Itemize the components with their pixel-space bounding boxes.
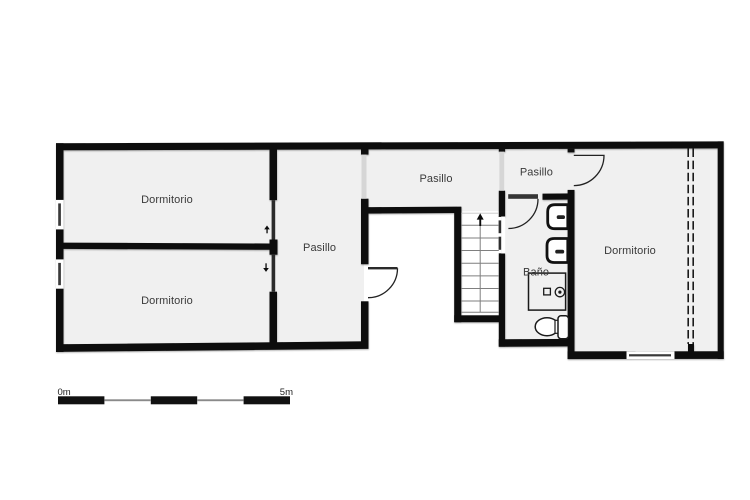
svg-text:Baño: Baño: [523, 267, 549, 279]
svg-text:Dormitorio: Dormitorio: [141, 194, 193, 206]
svg-text:Dormitorio: Dormitorio: [604, 245, 656, 257]
svg-text:Dormitorio: Dormitorio: [141, 295, 193, 307]
svg-text:0m: 0m: [58, 387, 71, 398]
svg-text:5m: 5m: [280, 387, 293, 398]
svg-text:Pasillo: Pasillo: [520, 166, 553, 178]
svg-text:Pasillo: Pasillo: [303, 242, 336, 254]
svg-text:Pasillo: Pasillo: [419, 173, 452, 185]
